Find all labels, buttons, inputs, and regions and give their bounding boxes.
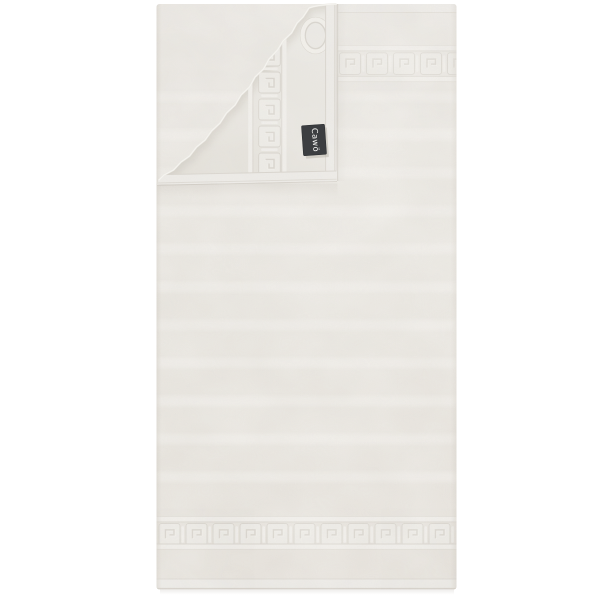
brand-label-text: Cawö	[310, 128, 322, 153]
towel-drop-shadow	[160, 590, 454, 595]
product-photo: Cawö	[0, 0, 600, 600]
brand-label: Cawö	[301, 124, 328, 159]
towel-image: Cawö	[0, 0, 600, 600]
